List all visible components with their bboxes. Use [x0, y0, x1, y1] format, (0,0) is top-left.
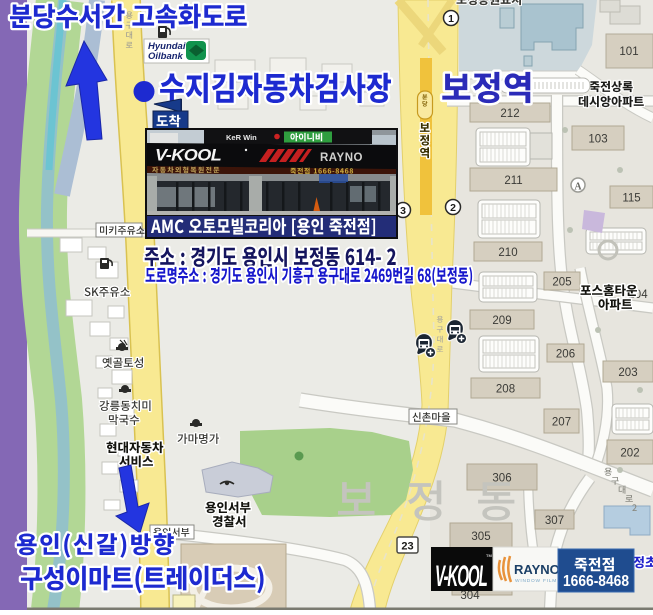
svg-text:KeR Win: KeR Win [226, 133, 257, 142]
svg-text:WINDOW FILM: WINDOW FILM [515, 578, 557, 584]
svg-text:Oilbank: Oilbank [148, 51, 184, 62]
svg-text:115: 115 [622, 193, 640, 205]
svg-text:TM: TM [486, 553, 492, 558]
svg-text:1666-8468: 1666-8468 [563, 573, 629, 590]
svg-text:211: 211 [504, 175, 522, 187]
svg-text:101: 101 [619, 46, 638, 58]
svg-text:3: 3 [400, 205, 406, 217]
svg-text:206: 206 [556, 349, 575, 361]
svg-text:23: 23 [401, 541, 413, 553]
svg-text:305: 305 [471, 531, 490, 543]
svg-text:207: 207 [552, 417, 571, 429]
svg-text:202: 202 [620, 448, 639, 460]
svg-text:212: 212 [500, 108, 519, 120]
svg-text:209: 209 [492, 315, 511, 327]
svg-text:RAYNO: RAYNO [320, 152, 363, 164]
svg-text:1: 1 [448, 13, 454, 25]
svg-text:RAYNO: RAYNO [514, 562, 560, 577]
svg-text:205: 205 [552, 277, 571, 289]
svg-text:2: 2 [450, 202, 456, 214]
svg-text:103: 103 [588, 134, 607, 146]
svg-text:A: A [574, 182, 582, 193]
svg-text:V-KOOL: V-KOOL [435, 560, 487, 593]
svg-text:203: 203 [618, 367, 637, 379]
svg-text:307: 307 [545, 515, 564, 527]
svg-text:210: 210 [498, 247, 517, 259]
svg-text:V-KOOL: V-KOOL [155, 145, 221, 164]
svg-text:208: 208 [496, 384, 515, 396]
